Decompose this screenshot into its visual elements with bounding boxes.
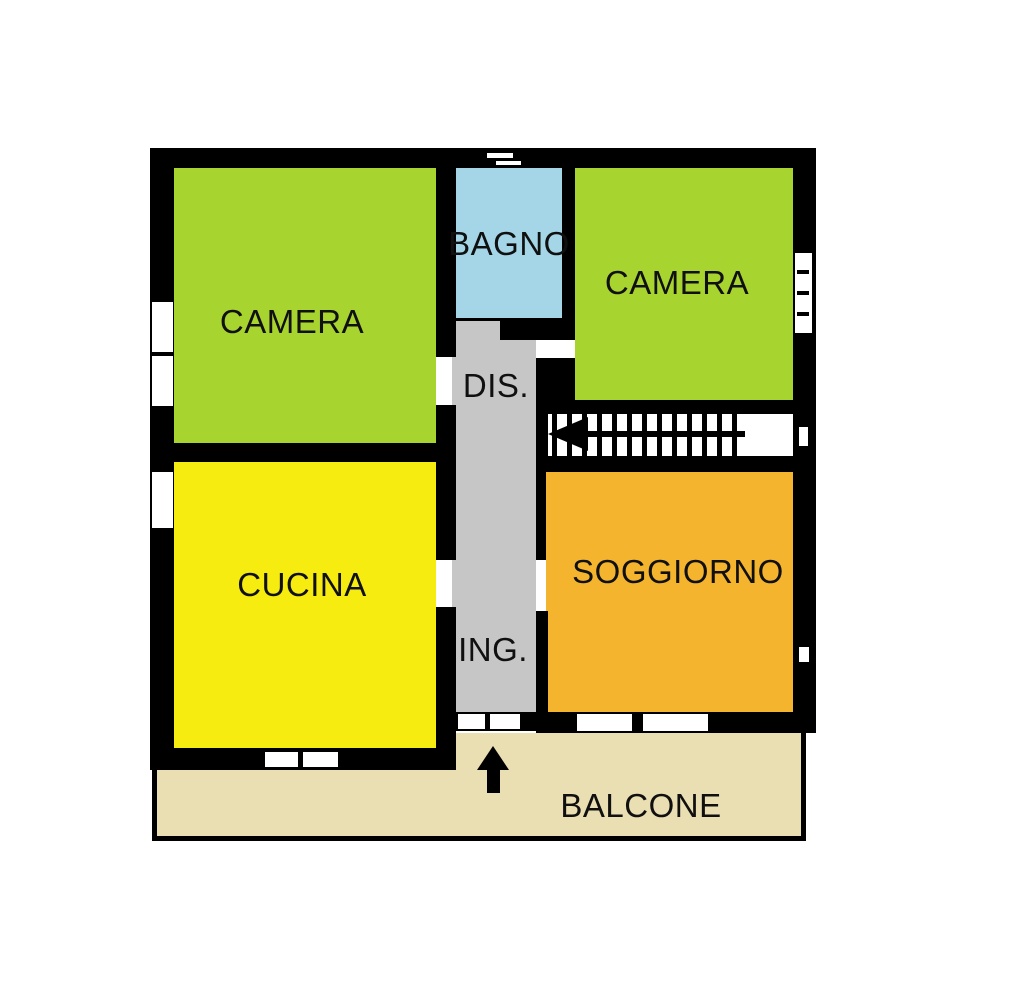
window-camera-2-dash-3 <box>797 312 809 316</box>
label-camera-1: CAMERA <box>220 303 364 341</box>
door-cucina-balcony-2 <box>303 752 338 767</box>
wall-mid-vertical-middle <box>436 405 456 560</box>
wall-camera2-door-jamb <box>536 358 575 402</box>
wall-stairs-top <box>536 400 795 414</box>
wall-corridor-soggiorno-upper <box>536 472 546 560</box>
wall-balcony-step <box>448 731 456 770</box>
label-cucina: CUCINA <box>237 566 367 604</box>
door-soggiorno-balcony-2 <box>643 714 708 731</box>
wall-top-scribble-1 <box>487 153 513 158</box>
room-soggiorno <box>546 472 793 712</box>
window-cucina <box>152 472 173 528</box>
balcony-edge-right <box>801 733 806 841</box>
entrance-arrow-icon <box>477 746 509 770</box>
stairs-center-line <box>585 431 745 437</box>
door-soggiorno-balcony-1 <box>577 714 632 731</box>
label-bagno: BAGNO <box>448 225 570 263</box>
floor-plan: CAMERA BAGNO CAMERA DIS. CUCINA SOGGIORN… <box>0 0 1024 983</box>
wall-stairs-left <box>536 414 548 456</box>
label-camera-2: CAMERA <box>605 264 749 302</box>
door-stair-landing <box>799 427 808 446</box>
wall-top-scribble-2 <box>496 161 521 165</box>
bagno-door-threshold <box>452 318 505 321</box>
room-balcone-left <box>157 770 456 836</box>
stairs-direction-arrow-icon <box>548 417 588 451</box>
door-ingresso-balcony-2 <box>490 714 520 729</box>
entrance-arrow-stem <box>487 770 500 793</box>
window-camera-2-dash-2 <box>797 291 809 295</box>
window-camera-2-dash-1 <box>797 270 809 274</box>
wall-corridor-soggiorno-lower <box>536 611 548 712</box>
balcony-edge-left <box>152 770 157 841</box>
door-cucina-balcony-1 <box>265 752 298 767</box>
label-balcone: BALCONE <box>560 787 721 825</box>
wall-bagno-bottom <box>500 318 575 340</box>
label-soggiorno: SOGGIORNO <box>572 553 784 591</box>
wall-stairs-bottom <box>536 456 800 472</box>
door-ingresso-balcony-1 <box>458 714 485 729</box>
wall-right-notch <box>799 647 809 662</box>
balcony-edge-bottom <box>152 836 806 841</box>
wall-camera1-cucina <box>150 443 456 462</box>
label-disimpegno: DIS. <box>463 367 529 405</box>
label-ingresso: ING. <box>458 631 528 669</box>
room-cucina <box>174 462 436 748</box>
window-camera-1-mullion <box>152 352 173 356</box>
wall-top <box>150 148 816 168</box>
